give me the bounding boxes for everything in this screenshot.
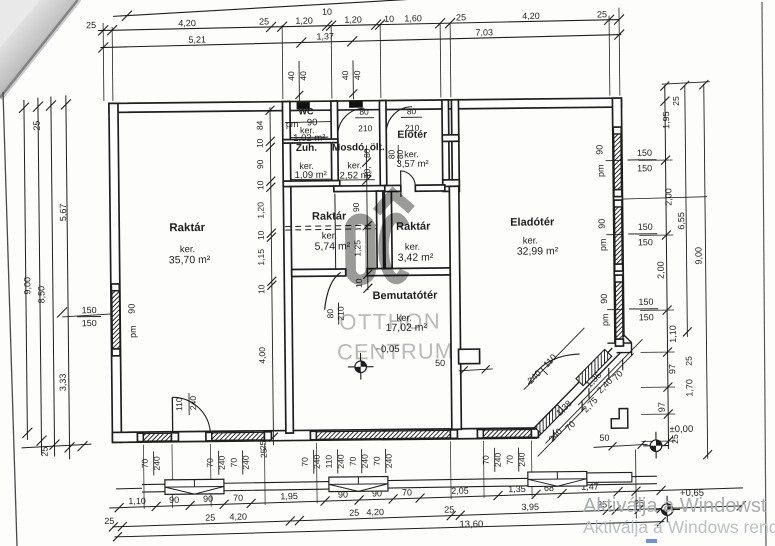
svg-text:ker.: ker. <box>347 160 362 170</box>
svg-text:150: 150 <box>82 318 97 328</box>
svg-text:25: 25 <box>444 505 454 515</box>
svg-text:10: 10 <box>384 14 394 24</box>
svg-text:pm: pm <box>286 119 299 129</box>
svg-text:110: 110 <box>324 455 334 469</box>
svg-text:50: 50 <box>599 433 609 443</box>
svg-text:80: 80 <box>325 309 335 319</box>
svg-text:Raktár: Raktár <box>312 210 347 222</box>
svg-text:80: 80 <box>359 107 369 117</box>
svg-text:90: 90 <box>255 159 265 169</box>
svg-text:4,00: 4,00 <box>257 347 267 364</box>
svg-text:70: 70 <box>229 458 239 468</box>
svg-text:70: 70 <box>481 455 491 465</box>
svg-text:70: 70 <box>402 487 412 497</box>
svg-text:90: 90 <box>594 145 604 155</box>
svg-text:1,20: 1,20 <box>344 15 362 25</box>
svg-text:90: 90 <box>351 202 361 212</box>
svg-text:7,03: 7,03 <box>475 27 493 37</box>
svg-text:25: 25 <box>670 434 680 444</box>
svg-text:10: 10 <box>256 230 266 240</box>
svg-text:10: 10 <box>255 180 265 190</box>
svg-text:WC: WC <box>298 106 314 116</box>
svg-text:3,95: 3,95 <box>521 502 539 512</box>
svg-text:pm: pm <box>600 313 610 326</box>
svg-text:Aktiválja a Windows rendszert,: Aktiválja a Windows rendszert, <box>583 517 775 537</box>
svg-text:3,57 m²: 3,57 m² <box>396 159 428 170</box>
svg-text:13,60: 13,60 <box>459 519 483 530</box>
svg-text:70: 70 <box>300 457 310 467</box>
svg-text:90: 90 <box>597 219 607 229</box>
svg-text:70: 70 <box>140 459 150 469</box>
svg-text:1,15: 1,15 <box>256 249 266 266</box>
svg-text:2,00: 2,00 <box>663 188 673 206</box>
svg-text:10: 10 <box>322 7 332 17</box>
svg-text:Bemutatótér: Bemutatótér <box>372 289 438 302</box>
svg-text:240: 240 <box>336 454 346 469</box>
svg-text:4,20: 4,20 <box>178 18 196 28</box>
svg-text:150: 150 <box>637 148 652 158</box>
svg-text:CENTRUM: CENTRUM <box>337 338 454 364</box>
svg-text:25: 25 <box>684 356 694 366</box>
svg-text:240: 240 <box>152 456 162 471</box>
svg-text:25: 25 <box>32 121 42 131</box>
svg-text:40: 40 <box>286 71 296 81</box>
svg-text:240: 240 <box>217 455 227 470</box>
svg-text:25: 25 <box>597 9 607 19</box>
svg-text:150: 150 <box>638 222 653 232</box>
svg-text:70: 70 <box>205 458 215 468</box>
svg-text:90: 90 <box>203 494 213 504</box>
svg-text:9,00: 9,00 <box>22 277 32 295</box>
svg-text:40: 40 <box>340 70 350 80</box>
svg-text:70: 70 <box>372 456 382 466</box>
svg-text:4,20: 4,20 <box>522 11 540 21</box>
svg-text:1,70: 1,70 <box>684 379 694 397</box>
svg-text:1,20: 1,20 <box>295 16 313 26</box>
svg-text:Aktiválja a Windowst: Aktiválja a Windowst <box>583 495 767 517</box>
svg-text:Raktár: Raktár <box>169 222 205 234</box>
svg-text:150: 150 <box>638 237 653 247</box>
svg-text:210: 210 <box>358 123 373 133</box>
svg-text:90: 90 <box>127 304 137 314</box>
svg-text:90: 90 <box>169 495 179 505</box>
svg-text:150: 150 <box>82 305 97 315</box>
svg-text:40: 40 <box>352 70 362 80</box>
svg-text:25: 25 <box>40 447 50 457</box>
svg-text:8,50: 8,50 <box>36 286 46 304</box>
svg-text:25: 25 <box>671 96 681 106</box>
svg-text:110: 110 <box>174 397 184 411</box>
svg-text:3,42 m²: 3,42 m² <box>398 252 434 264</box>
svg-text:25: 25 <box>205 513 215 523</box>
svg-text:240: 240 <box>241 455 251 470</box>
svg-text:240: 240 <box>517 452 527 467</box>
svg-text:6,55: 6,55 <box>676 212 686 230</box>
svg-text:OTTHON: OTTHON <box>339 308 441 334</box>
svg-text:70: 70 <box>505 455 515 465</box>
svg-text:84: 84 <box>255 120 265 130</box>
svg-text:4,20: 4,20 <box>366 507 384 517</box>
svg-text:80: 80 <box>407 106 417 116</box>
svg-text:25: 25 <box>456 12 466 22</box>
svg-text:150: 150 <box>639 312 654 322</box>
svg-text:150: 150 <box>638 297 653 307</box>
svg-text:240: 240 <box>493 452 503 467</box>
svg-text:35,70 m²: 35,70 m² <box>169 254 211 266</box>
svg-text:10: 10 <box>256 284 266 294</box>
svg-text:1,95: 1,95 <box>280 491 298 501</box>
svg-text:5,21: 5,21 <box>188 35 206 45</box>
svg-text:1,10: 1,10 <box>128 496 146 506</box>
svg-text:Zuh.: Zuh. <box>296 143 317 154</box>
svg-text:240: 240 <box>384 454 394 469</box>
svg-text:pm: pm <box>598 238 608 251</box>
svg-text:25: 25 <box>86 20 96 30</box>
svg-text:3,33: 3,33 <box>58 374 68 392</box>
svg-text:25: 25 <box>104 516 114 526</box>
svg-text:97: 97 <box>667 364 677 374</box>
svg-text:32,99 m²: 32,99 m² <box>517 245 559 257</box>
svg-text:Előtér: Előtér <box>397 129 427 141</box>
svg-text:25: 25 <box>259 448 269 458</box>
svg-text:1,20: 1,20 <box>255 202 265 219</box>
svg-text:1,95: 1,95 <box>661 111 671 129</box>
svg-text:5,67: 5,67 <box>58 204 68 222</box>
svg-text:4,20: 4,20 <box>229 512 247 522</box>
svg-text:Mosdó, ölt.: Mosdó, ölt. <box>332 142 385 154</box>
svg-text:pm: pm <box>596 164 606 177</box>
svg-text:Eladótér: Eladótér <box>510 216 555 228</box>
svg-text:70: 70 <box>233 493 243 503</box>
svg-text:9,00: 9,00 <box>693 247 703 265</box>
svg-text:40: 40 <box>298 71 308 81</box>
svg-text:240: 240 <box>360 454 370 469</box>
svg-text:25: 25 <box>349 508 359 518</box>
svg-text:25: 25 <box>259 16 269 26</box>
svg-text:90: 90 <box>599 294 609 304</box>
svg-text:150: 150 <box>637 163 652 173</box>
svg-text:1,10: 1,10 <box>668 325 678 343</box>
svg-text:1,60: 1,60 <box>404 13 422 23</box>
svg-text:2,00: 2,00 <box>656 261 666 279</box>
svg-text:±0,00: ±0,00 <box>669 424 693 435</box>
svg-text:97: 97 <box>657 402 667 412</box>
svg-text:70: 70 <box>348 456 358 466</box>
svg-text:10: 10 <box>255 138 265 148</box>
svg-text:pm: pm <box>128 325 138 338</box>
